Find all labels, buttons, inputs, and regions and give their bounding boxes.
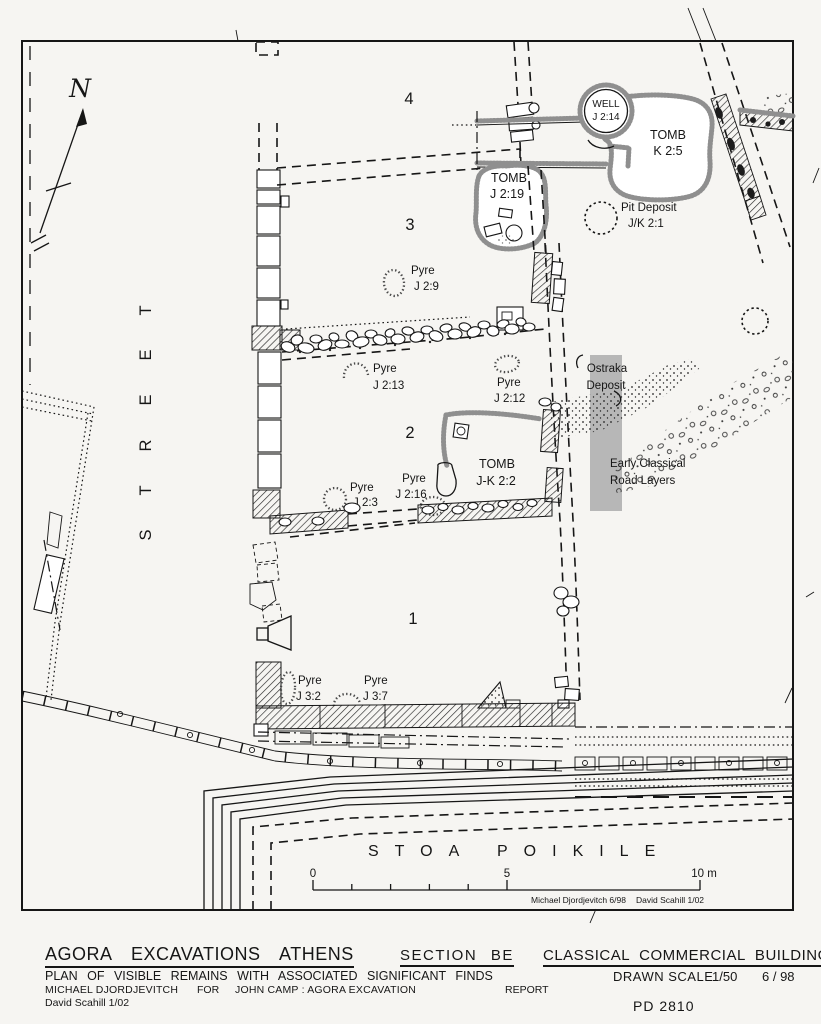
title-date: 6 / 98 xyxy=(762,969,795,984)
title-author2: David Scahill 1/02 xyxy=(45,997,129,1009)
pyre-j3-2-label-1: Pyre xyxy=(298,675,322,687)
tomb-j2-19: TOMB J 2:19 xyxy=(476,165,547,254)
stoa-label-word2: POIKILE xyxy=(497,843,671,860)
excavation-plan: N STREET xyxy=(0,0,821,1024)
room2-number: 2 xyxy=(405,424,414,442)
well-label-2: J 2:14 xyxy=(592,112,620,123)
tomb-j2-19-label-1: TOMB xyxy=(491,171,527,185)
scale-tick-5: 5 xyxy=(504,868,510,880)
tomb-jk2-2-label-2: J-K 2:2 xyxy=(476,474,516,488)
tomb-k2-5-label-1: TOMB xyxy=(650,128,686,142)
scale-tick-0: 0 xyxy=(310,868,316,880)
north-label: N xyxy=(68,74,92,103)
tomb-j2-19-label-2: J 2:19 xyxy=(490,187,524,201)
pyre-j2-3-label-1: Pyre xyxy=(350,482,374,494)
pit-deposit-label-1: Pit Deposit xyxy=(621,202,677,214)
drawing-number: PD 2810 xyxy=(633,998,694,1014)
room4-number: 4 xyxy=(404,90,413,108)
tomb-jk2-2-label-1: TOMB xyxy=(479,457,515,471)
title-for: FOR xyxy=(197,984,219,996)
pyre-j3-2-label-2: J 3:2 xyxy=(296,691,321,703)
pyre-j2-13-label-1: Pyre xyxy=(373,363,397,375)
credit-drafter-2: David Scahill 1/02 xyxy=(636,895,704,905)
pyre-j2-9-label-1: Pyre xyxy=(411,265,435,277)
title-project: AGORA EXCAVATIONS ATHENS xyxy=(45,944,354,968)
title-report: REPORT xyxy=(505,984,549,996)
pyre-j2-16-label-1: Pyre xyxy=(402,473,426,485)
street-label: STREET xyxy=(137,271,155,540)
title-author: MICHAEL DJORDJEVITCH xyxy=(45,984,178,996)
pyre-j3-7-label-1: Pyre xyxy=(364,675,388,687)
pyre-j2-12-label-2: J 2:12 xyxy=(494,393,525,405)
ostraka-label-1: Ostraka xyxy=(587,363,628,375)
room1-number: 1 xyxy=(408,610,417,628)
credit-drafter-1: Michael Djordjevitch 6/98 xyxy=(531,895,626,905)
tomb-k2-5-label-2: K 2:5 xyxy=(653,144,682,158)
pyre-j2-13-label-2: J 2:13 xyxy=(373,380,404,392)
title-client: JOHN CAMP : AGORA EXCAVATION xyxy=(235,984,416,996)
title-scale-value: 1/50 xyxy=(712,969,737,984)
well-label-1: WELL xyxy=(592,99,620,110)
title-building: CLASSICAL COMMERCIAL BUILDING xyxy=(543,947,821,967)
pit-deposit-label-2: J/K 2:1 xyxy=(628,218,664,230)
road-layers-label-1: Early Classical xyxy=(610,458,685,470)
pyre-j2-9-label-2: J 2:9 xyxy=(414,281,439,293)
road-layers-label-2: Road Layers xyxy=(610,475,675,487)
scale-tick-10: 10 m xyxy=(691,868,717,880)
pyre-j2-16-label-2: J 2:16 xyxy=(395,489,426,501)
title-section: SECTION BE xyxy=(400,947,514,967)
title-scale-label: DRAWN SCALE xyxy=(613,969,713,984)
pyre-j3-7-label-2: J 3:7 xyxy=(363,691,388,703)
stoa-label-word1: STOA xyxy=(368,843,475,860)
room3-number: 3 xyxy=(405,216,414,234)
pyre-j2-12-label-1: Pyre xyxy=(497,377,521,389)
title-subtitle: PLAN OF VISIBLE REMAINS WITH ASSOCIATED … xyxy=(45,969,493,983)
drawing-sheet: N STREET xyxy=(0,0,821,1024)
